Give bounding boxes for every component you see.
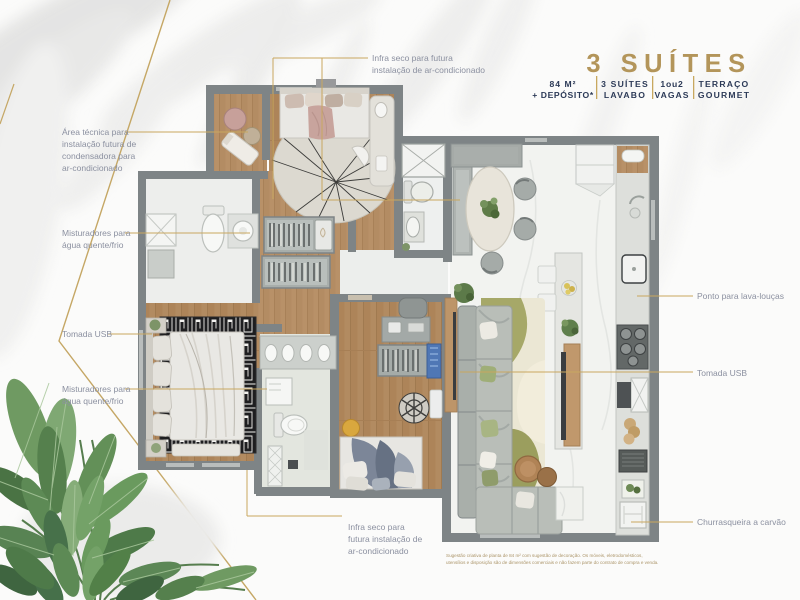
svg-text:1ou2: 1ou2 xyxy=(660,79,683,89)
svg-text:ar-condicionado: ar-condicionado xyxy=(62,163,123,173)
svg-text:Tomada USB: Tomada USB xyxy=(62,329,112,339)
svg-text:LAVABO: LAVABO xyxy=(604,90,646,100)
svg-text:água quente/frio: água quente/frio xyxy=(62,240,124,250)
svg-text:Churrasqueira a carvão: Churrasqueira a carvão xyxy=(697,517,786,527)
svg-text:GOURMET: GOURMET xyxy=(698,90,750,100)
svg-text:3 SUÍTES: 3 SUÍTES xyxy=(586,49,751,78)
svg-text:Ponto para lava-louças: Ponto para lava-louças xyxy=(697,291,784,301)
svg-text:Misturadores para: Misturadores para xyxy=(62,384,131,394)
svg-text:84 M²: 84 M² xyxy=(550,79,577,89)
svg-text:condensadora para: condensadora para xyxy=(62,151,136,161)
svg-text:Infra seco para futura: Infra seco para futura xyxy=(372,53,453,63)
svg-text:Misturadores para: Misturadores para xyxy=(62,228,131,238)
svg-text:Tomada USB: Tomada USB xyxy=(697,368,747,378)
svg-text:TERRAÇO: TERRAÇO xyxy=(699,79,750,89)
svg-text:água quente/frio: água quente/frio xyxy=(62,396,124,406)
svg-text:Sugestão criativa de planta de: Sugestão criativa de planta de 84 m² com… xyxy=(446,553,643,558)
svg-text:3 SUÍTES: 3 SUÍTES xyxy=(601,79,649,89)
svg-text:ar-condicionado: ar-condicionado xyxy=(348,546,409,556)
svg-text:Infra seco para: Infra seco para xyxy=(348,522,405,532)
svg-text:instalação de ar-condicionado: instalação de ar-condicionado xyxy=(372,65,485,75)
svg-text:+ DEPÓSITO*: + DEPÓSITO* xyxy=(532,89,594,100)
svg-text:Área técnica para: Área técnica para xyxy=(62,127,129,137)
svg-text:instalação futura de: instalação futura de xyxy=(62,139,136,149)
svg-text:utensílios e disposição são de: utensílios e disposição são de dimensões… xyxy=(446,560,658,565)
svg-text:futura instalação de: futura instalação de xyxy=(348,534,422,544)
svg-text:VAGAS: VAGAS xyxy=(655,90,690,100)
